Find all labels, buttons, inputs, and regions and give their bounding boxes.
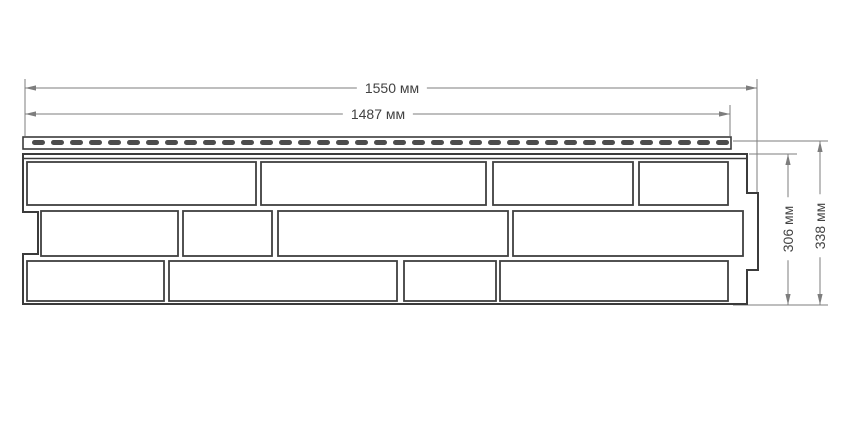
dim-label-total-width: 1550 мм	[357, 79, 427, 97]
nail-slot	[336, 140, 349, 145]
dimension-arrow	[25, 85, 36, 90]
nail-slot	[393, 140, 406, 145]
brick-row2	[278, 211, 508, 256]
nail-slot	[146, 140, 159, 145]
dimension-arrow	[746, 85, 757, 90]
nail-slot	[222, 140, 235, 145]
dimension-arrow	[785, 294, 790, 305]
nail-slot	[165, 140, 178, 145]
dimension-arrow	[817, 294, 822, 305]
nail-slot	[602, 140, 615, 145]
brick-row3	[404, 261, 496, 301]
dimension-arrow	[817, 141, 822, 152]
nail-slot	[621, 140, 634, 145]
nail-slot	[127, 140, 140, 145]
nail-slot	[89, 140, 102, 145]
nail-slot	[678, 140, 691, 145]
brick-row3	[169, 261, 397, 301]
nail-slot	[469, 140, 482, 145]
nail-slot	[412, 140, 425, 145]
dimension-arrow	[785, 154, 790, 165]
nail-slot	[697, 140, 710, 145]
nail-slot	[32, 140, 45, 145]
nail-slot	[659, 140, 672, 145]
nail-slot	[260, 140, 273, 145]
nail-slot	[640, 140, 653, 145]
brick-row3	[27, 261, 164, 301]
nail-slot	[51, 140, 64, 145]
nail-slot	[431, 140, 444, 145]
brick-row3	[500, 261, 728, 301]
nail-slot	[716, 140, 729, 145]
nail-slot	[317, 140, 330, 145]
diagram-svg	[0, 0, 850, 425]
nail-slot	[203, 140, 216, 145]
nail-slot	[583, 140, 596, 145]
brick-row1	[493, 162, 633, 205]
nail-slot	[355, 140, 368, 145]
dim-label-panel-height: 306 мм	[779, 198, 797, 261]
nail-slot	[545, 140, 558, 145]
dim-label-nail-strip-width: 1487 мм	[343, 105, 413, 123]
dimension-arrow	[25, 111, 36, 116]
brick-row1	[639, 162, 728, 205]
nail-slot	[279, 140, 292, 145]
brick-row1	[27, 162, 256, 205]
nail-slot	[241, 140, 254, 145]
nail-slot	[108, 140, 121, 145]
nail-slot	[298, 140, 311, 145]
nail-slot	[374, 140, 387, 145]
nail-slot	[488, 140, 501, 145]
brick-row1	[261, 162, 486, 205]
nail-slot	[184, 140, 197, 145]
brick-row2	[183, 211, 272, 256]
nail-slot	[450, 140, 463, 145]
panel-dimension-drawing: 1550 мм 1487 мм 306 мм 338 мм	[0, 0, 850, 425]
nail-slot	[70, 140, 83, 145]
brick-row2	[513, 211, 743, 256]
dim-label-total-height: 338 мм	[811, 195, 829, 258]
nail-slot	[526, 140, 539, 145]
brick-row2	[41, 211, 178, 256]
dimension-arrow	[719, 111, 730, 116]
nail-slot	[564, 140, 577, 145]
nail-slot	[507, 140, 520, 145]
